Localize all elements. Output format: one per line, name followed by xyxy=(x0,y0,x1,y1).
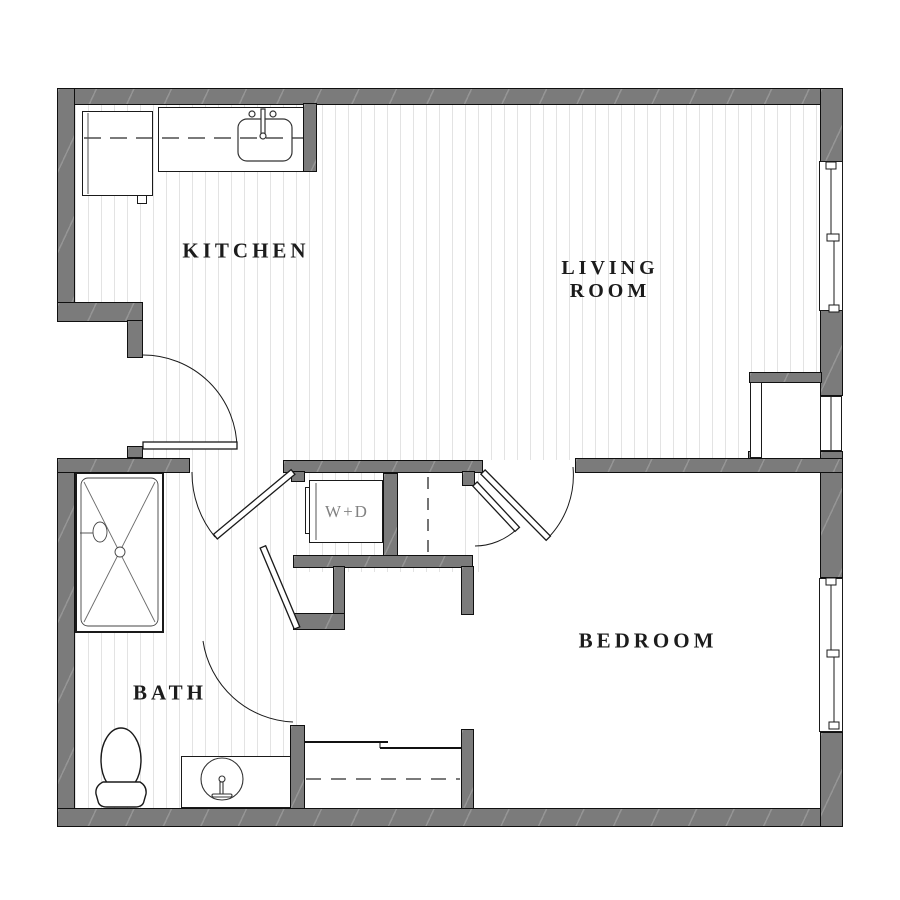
living-room-label-line1: LIVING xyxy=(561,257,658,280)
vanity-faucet xyxy=(220,782,223,795)
laundry-left-door-leaf xyxy=(213,470,294,539)
closet-sliding-doors xyxy=(305,742,461,748)
kitchen-door-leaf xyxy=(143,442,237,449)
laundry-right-door-arc xyxy=(475,529,517,546)
living-room-label: LIVING ROOM xyxy=(561,257,658,303)
bedroom-label: BEDROOM xyxy=(579,629,718,654)
toilet-base xyxy=(96,782,146,807)
bath-label: BATH xyxy=(133,681,207,706)
laundry-left-door-arc xyxy=(192,472,215,537)
kitchen-label: KITCHEN xyxy=(182,239,309,264)
window-mullions xyxy=(826,162,839,729)
sink-faucet xyxy=(261,109,265,135)
vanity-sink xyxy=(201,758,243,800)
kitchen-sink xyxy=(238,109,292,161)
shower-head xyxy=(93,522,107,542)
bath-door-arc xyxy=(203,641,293,722)
shower-detail xyxy=(80,478,158,626)
kitchen-door-arc xyxy=(143,355,237,449)
washer-dryer-label: W+D xyxy=(325,502,369,522)
toilet xyxy=(96,728,146,807)
living-room-label-line2: ROOM xyxy=(561,280,658,303)
doors xyxy=(143,355,573,722)
shower-drain xyxy=(115,547,125,557)
bedroom-door-arc xyxy=(548,467,573,538)
floor-plan: KITCHEN LIVING ROOM BEDROOM BATH W+D xyxy=(0,0,900,900)
bath-door-leaf xyxy=(260,546,300,629)
plan-linework xyxy=(0,0,900,900)
